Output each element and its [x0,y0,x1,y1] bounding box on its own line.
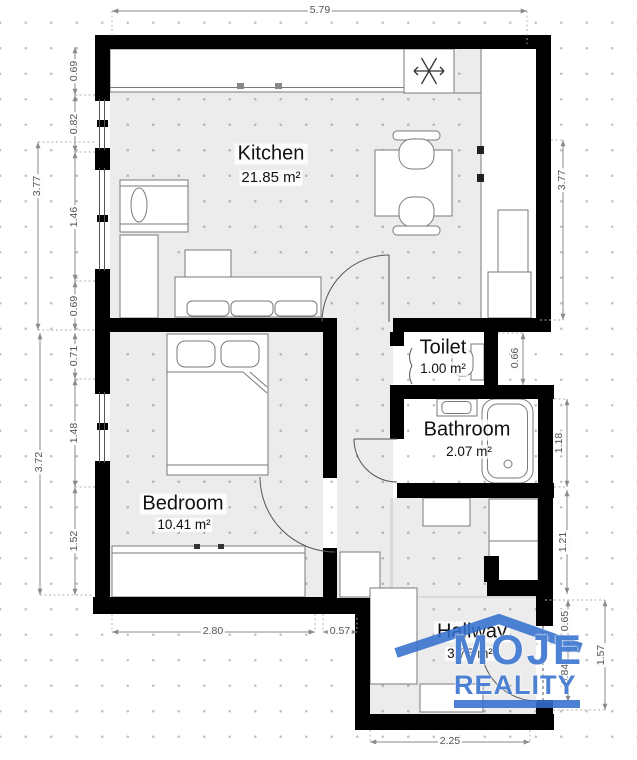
room-area-bathroom: 2.07 m² [444,445,494,459]
bathroom-sink [437,399,477,416]
window [95,390,110,465]
dim-bottom-offset: 0.57 [328,626,352,638]
door-toilet-bifold [410,348,412,384]
room-area-hallway: 3.75 m² [445,647,495,661]
dim-left-seg5: 0.71 [69,344,81,368]
room-area-kitchen: 21.85 m² [239,170,302,186]
cot [120,180,188,232]
dim-left-seg7: 1.52 [69,529,81,553]
room-label-hallway: Hallway [434,622,510,643]
dim-bottom-bedroom: 2.80 [201,626,225,638]
kitchen-cabinet [120,235,158,318]
dim-right-bath-bottom: 1.21 [558,530,570,554]
shelf [498,210,528,272]
floor-plan-drawing [0,0,637,760]
dim-left-seg1: 0.69 [69,59,81,83]
room-area-toilet: 1.00 m² [418,362,468,376]
window [95,166,110,273]
bathtub [482,399,533,483]
dim-bottom-hallway: 2.25 [438,736,462,748]
floor-plan: Kitchen 21.85 m² Toilet 1.00 m² Bathroom… [0,0,637,760]
chair [399,197,434,227]
hallway-bench [420,684,483,712]
dim-left-seg2: 0.82 [69,112,81,136]
dim-left-outer-bottom: 3.72 [34,450,46,474]
room-area-bedroom: 10.41 m² [155,518,212,532]
window [95,97,110,152]
dim-right-hall-mid: 0.84 [560,662,572,686]
double-bed [167,334,268,475]
dim-right-outer: 3.77 [557,168,569,192]
dim-right-bath-top: 1.18 [554,431,566,455]
room-label-kitchen: Kitchen [235,144,308,165]
washing-machine [423,498,470,526]
dim-left-seg3: 1.46 [69,205,81,229]
dim-left-seg4: 0.69 [69,294,81,318]
dim-right-hall-total: 1.57 [596,643,608,667]
dim-right-toilet: 0.66 [510,346,522,370]
dim-left-outer-top: 3.77 [32,174,44,198]
hallway-closet [370,588,417,684]
room-label-toilet: Toilet [417,338,470,359]
dim-top-width: 5.79 [308,5,332,17]
pillow [177,341,215,367]
sink-tap-icon [275,83,282,89]
chair [393,226,440,235]
shelf [489,499,538,541]
wardrobe [112,544,305,597]
dim-right-hall-top: 0.65 [560,609,572,633]
shelf [488,272,531,318]
room-label-bathroom: Bathroom [421,420,514,441]
sink-tap-icon [237,83,244,89]
kitchen-counter [110,49,404,92]
dim-left-seg6: 1.48 [69,421,81,445]
pillow [221,341,259,367]
chair [399,139,434,169]
room-label-bedroom: Bedroom [139,494,226,515]
